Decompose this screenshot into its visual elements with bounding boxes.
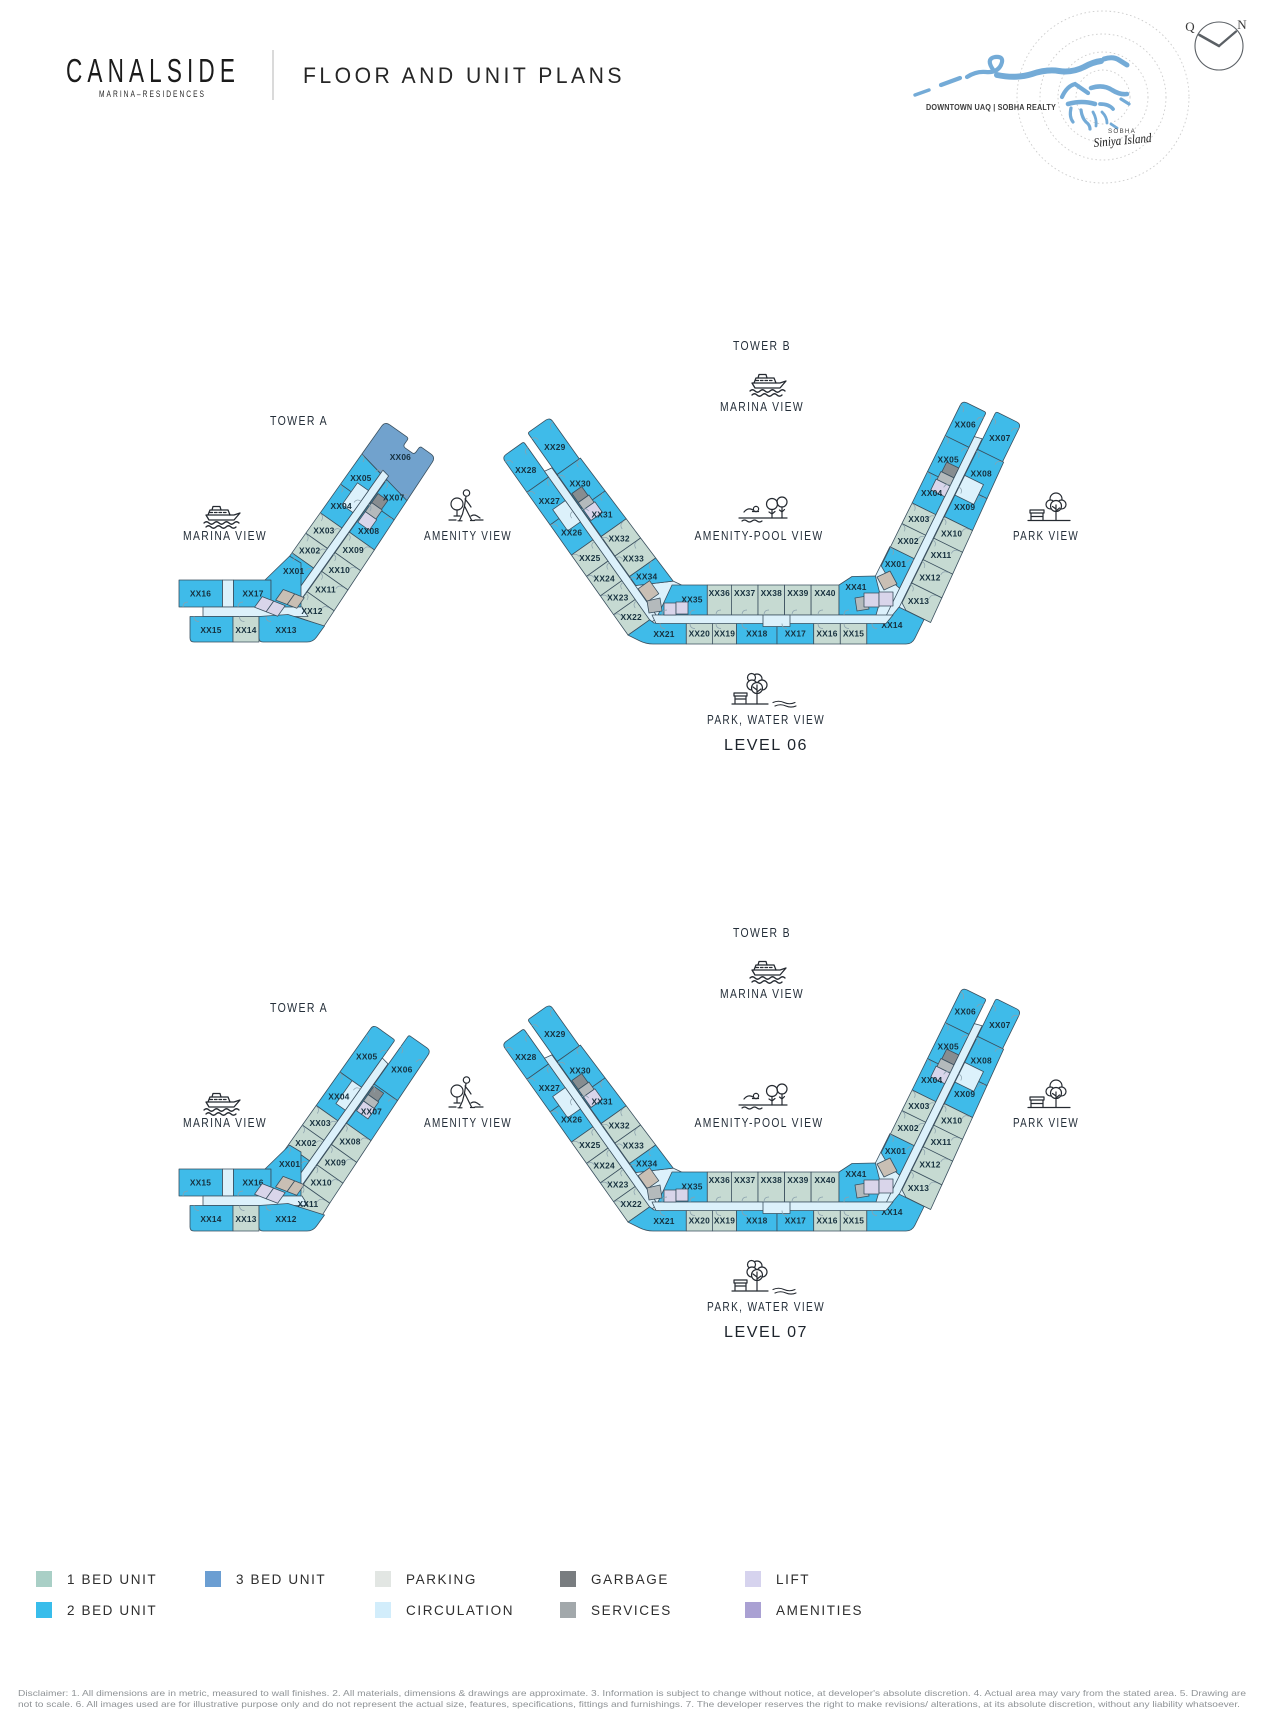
- svg-text:TOWER A: TOWER A: [270, 413, 328, 428]
- svg-text:XX03: XX03: [309, 1118, 330, 1128]
- svg-text:XX10: XX10: [310, 1178, 331, 1188]
- svg-text:XX22: XX22: [621, 1199, 642, 1209]
- svg-text:XX19: XX19: [714, 1216, 735, 1226]
- svg-text:XX05: XX05: [350, 473, 371, 483]
- svg-text:XX30: XX30: [569, 1065, 590, 1075]
- svg-text:XX01: XX01: [279, 1159, 300, 1169]
- svg-text:XX24: XX24: [594, 574, 615, 584]
- svg-text:XX17: XX17: [785, 1216, 806, 1226]
- svg-text:GARBAGE: GARBAGE: [591, 1572, 669, 1587]
- svg-text:XX02: XX02: [897, 536, 918, 546]
- svg-text:XX15: XX15: [200, 625, 221, 635]
- svg-text:XX02: XX02: [897, 1123, 918, 1133]
- svg-text:XX32: XX32: [608, 1121, 629, 1131]
- svg-text:XX07: XX07: [361, 1107, 382, 1117]
- svg-text:XX33: XX33: [623, 1141, 644, 1151]
- svg-text:XX23: XX23: [607, 593, 628, 603]
- svg-text:XX01: XX01: [885, 1146, 906, 1156]
- svg-text:XX12: XX12: [275, 1214, 296, 1224]
- svg-text:XX19: XX19: [714, 629, 735, 639]
- svg-text:XX04: XX04: [328, 1091, 349, 1101]
- svg-text:XX40: XX40: [814, 1175, 835, 1185]
- svg-text:XX06: XX06: [955, 1006, 976, 1016]
- svg-text:XX02: XX02: [295, 1138, 316, 1148]
- svg-text:FLOOR AND UNIT PLANS: FLOOR AND UNIT PLANS: [303, 63, 625, 88]
- svg-text:CIRCULATION: CIRCULATION: [406, 1603, 514, 1618]
- svg-text:XX23: XX23: [607, 1180, 628, 1190]
- svg-text:XX20: XX20: [689, 629, 710, 639]
- svg-text:XX33: XX33: [623, 554, 644, 564]
- svg-text:MARINA VIEW: MARINA VIEW: [183, 1115, 267, 1130]
- svg-text:XX32: XX32: [608, 534, 629, 544]
- svg-text:XX09: XX09: [954, 502, 975, 512]
- svg-text:MARINA VIEW: MARINA VIEW: [720, 986, 804, 1001]
- svg-text:XX04: XX04: [921, 488, 942, 498]
- svg-text:SERVICES: SERVICES: [591, 1603, 672, 1618]
- svg-text:XX05: XX05: [938, 455, 959, 465]
- svg-text:XX27: XX27: [539, 496, 560, 506]
- svg-text:XX38: XX38: [761, 588, 782, 598]
- svg-text:XX22: XX22: [621, 612, 642, 622]
- svg-text:XX26: XX26: [561, 527, 582, 537]
- svg-text:XX09: XX09: [325, 1158, 346, 1168]
- svg-text:XX05: XX05: [938, 1042, 959, 1052]
- svg-text:AMENITIES: AMENITIES: [776, 1603, 863, 1618]
- svg-text:DOWNTOWN UAQ | SOBHA REALTY: DOWNTOWN UAQ | SOBHA REALTY: [926, 102, 1056, 112]
- svg-text:CANALSIDE: CANALSIDE: [66, 52, 240, 89]
- svg-text:XX11: XX11: [931, 1137, 952, 1147]
- svg-text:XX28: XX28: [515, 1052, 536, 1062]
- svg-text:PARKING: PARKING: [406, 1572, 477, 1587]
- svg-text:XX28: XX28: [515, 465, 536, 475]
- svg-text:AMENITY VIEW: AMENITY VIEW: [424, 528, 512, 543]
- svg-text:XX17: XX17: [785, 629, 806, 639]
- svg-text:XX41: XX41: [845, 582, 866, 592]
- svg-text:XX41: XX41: [845, 1169, 866, 1179]
- svg-text:XX05: XX05: [356, 1052, 377, 1062]
- svg-text:XX12: XX12: [919, 1160, 940, 1170]
- svg-text:XX15: XX15: [190, 1178, 211, 1188]
- svg-text:PARK VIEW: PARK VIEW: [1013, 1115, 1079, 1130]
- svg-text:XX38: XX38: [761, 1175, 782, 1185]
- svg-text:XX37: XX37: [734, 588, 755, 598]
- svg-text:XX29: XX29: [544, 1029, 565, 1039]
- svg-text:XX10: XX10: [329, 565, 350, 575]
- svg-text:XX31: XX31: [591, 510, 612, 520]
- svg-text:XX13: XX13: [235, 1214, 256, 1224]
- svg-text:XX15: XX15: [843, 1216, 864, 1226]
- svg-text:XX18: XX18: [746, 1216, 767, 1226]
- svg-text:XX37: XX37: [734, 1175, 755, 1185]
- svg-text:XX18: XX18: [746, 629, 767, 639]
- svg-text:XX13: XX13: [275, 625, 296, 635]
- svg-text:AMENITY VIEW: AMENITY VIEW: [424, 1115, 512, 1130]
- svg-text:Disclaimer: 1. All dimensions: Disclaimer: 1. All dimensions are in met…: [18, 1688, 1246, 1698]
- svg-text:AMENITY-POOL VIEW: AMENITY-POOL VIEW: [695, 528, 824, 543]
- svg-text:XX10: XX10: [941, 529, 962, 539]
- svg-text:XX20: XX20: [689, 1216, 710, 1226]
- svg-text:XX14: XX14: [200, 1214, 221, 1224]
- svg-text:XX03: XX03: [313, 526, 334, 536]
- svg-text:3 BED UNIT: 3 BED UNIT: [236, 1572, 326, 1587]
- svg-text:XX10: XX10: [941, 1116, 962, 1126]
- svg-text:XX30: XX30: [569, 478, 590, 488]
- svg-text:XX25: XX25: [579, 553, 600, 563]
- svg-text:TOWER B: TOWER B: [733, 925, 791, 940]
- svg-text:Q: Q: [1185, 19, 1195, 34]
- svg-text:XX21: XX21: [653, 629, 674, 639]
- svg-text:XX34: XX34: [636, 1159, 657, 1169]
- svg-text:XX07: XX07: [383, 492, 404, 502]
- svg-text:XX11: XX11: [315, 584, 336, 594]
- svg-text:XX16: XX16: [816, 1216, 837, 1226]
- svg-text:XX15: XX15: [843, 629, 864, 639]
- svg-text:XX04: XX04: [921, 1075, 942, 1085]
- svg-text:LEVEL 06: LEVEL 06: [724, 737, 808, 754]
- svg-text:XX26: XX26: [561, 1114, 582, 1124]
- svg-text:XX16: XX16: [816, 629, 837, 639]
- svg-text:XX13: XX13: [908, 1183, 929, 1193]
- svg-text:XX39: XX39: [787, 1175, 808, 1185]
- svg-text:TOWER A: TOWER A: [270, 1000, 328, 1015]
- svg-text:XX39: XX39: [787, 588, 808, 598]
- svg-text:XX01: XX01: [885, 559, 906, 569]
- svg-text:XX36: XX36: [709, 1175, 730, 1185]
- svg-text:N: N: [1237, 17, 1247, 32]
- svg-text:1 BED UNIT: 1 BED UNIT: [67, 1572, 157, 1587]
- svg-text:XX03: XX03: [908, 1101, 929, 1111]
- svg-text:XX06: XX06: [955, 419, 976, 429]
- svg-text:XX07: XX07: [989, 433, 1010, 443]
- svg-text:XX04: XX04: [331, 501, 352, 511]
- svg-text:XX16: XX16: [190, 589, 211, 599]
- svg-text:XX29: XX29: [544, 442, 565, 452]
- svg-text:XX07: XX07: [989, 1020, 1010, 1030]
- svg-text:XX01: XX01: [283, 566, 304, 576]
- svg-text:XX12: XX12: [919, 573, 940, 583]
- svg-text:MARINA VIEW: MARINA VIEW: [720, 399, 804, 414]
- svg-text:MARINA–RESIDENCES: MARINA–RESIDENCES: [99, 89, 206, 100]
- svg-text:XX11: XX11: [931, 550, 952, 560]
- svg-text:LEVEL 07: LEVEL 07: [724, 1324, 808, 1341]
- svg-text:XX24: XX24: [594, 1161, 615, 1171]
- svg-text:XX12: XX12: [301, 606, 322, 616]
- svg-text:XX14: XX14: [235, 625, 256, 635]
- svg-text:not to scale. 6. All images us: not to scale. 6. All images used are for…: [18, 1699, 1240, 1709]
- svg-text:PARK, WATER VIEW: PARK, WATER VIEW: [707, 712, 825, 727]
- svg-text:XX09: XX09: [954, 1089, 975, 1099]
- svg-text:PARK VIEW: PARK VIEW: [1013, 528, 1079, 543]
- svg-text:XX25: XX25: [579, 1140, 600, 1150]
- svg-text:2 BED UNIT: 2 BED UNIT: [67, 1603, 157, 1618]
- svg-text:XX11: XX11: [297, 1199, 318, 1209]
- svg-text:XX03: XX03: [908, 514, 929, 524]
- svg-text:XX40: XX40: [814, 588, 835, 598]
- svg-text:XX06: XX06: [390, 452, 411, 462]
- svg-text:XX21: XX21: [653, 1216, 674, 1226]
- svg-text:XX31: XX31: [591, 1097, 612, 1107]
- svg-text:LIFT: LIFT: [776, 1572, 810, 1587]
- svg-text:AMENITY-POOL VIEW: AMENITY-POOL VIEW: [695, 1115, 824, 1130]
- svg-text:XX13: XX13: [908, 596, 929, 606]
- svg-text:XX08: XX08: [971, 1056, 992, 1066]
- svg-text:XX08: XX08: [339, 1137, 360, 1147]
- svg-text:TOWER B: TOWER B: [733, 338, 791, 353]
- svg-text:XX09: XX09: [343, 545, 364, 555]
- svg-text:PARK, WATER VIEW: PARK, WATER VIEW: [707, 1299, 825, 1314]
- svg-text:XX27: XX27: [539, 1083, 560, 1093]
- svg-text:XX36: XX36: [709, 588, 730, 598]
- svg-text:XX06: XX06: [391, 1064, 412, 1074]
- svg-text:XX08: XX08: [358, 526, 379, 536]
- svg-text:XX02: XX02: [299, 546, 320, 556]
- svg-text:MARINA VIEW: MARINA VIEW: [183, 528, 267, 543]
- svg-text:XX08: XX08: [971, 469, 992, 479]
- svg-text:XX34: XX34: [636, 572, 657, 582]
- svg-text:XX17: XX17: [242, 589, 263, 599]
- svg-text:Siniya Island: Siniya Island: [1093, 130, 1153, 150]
